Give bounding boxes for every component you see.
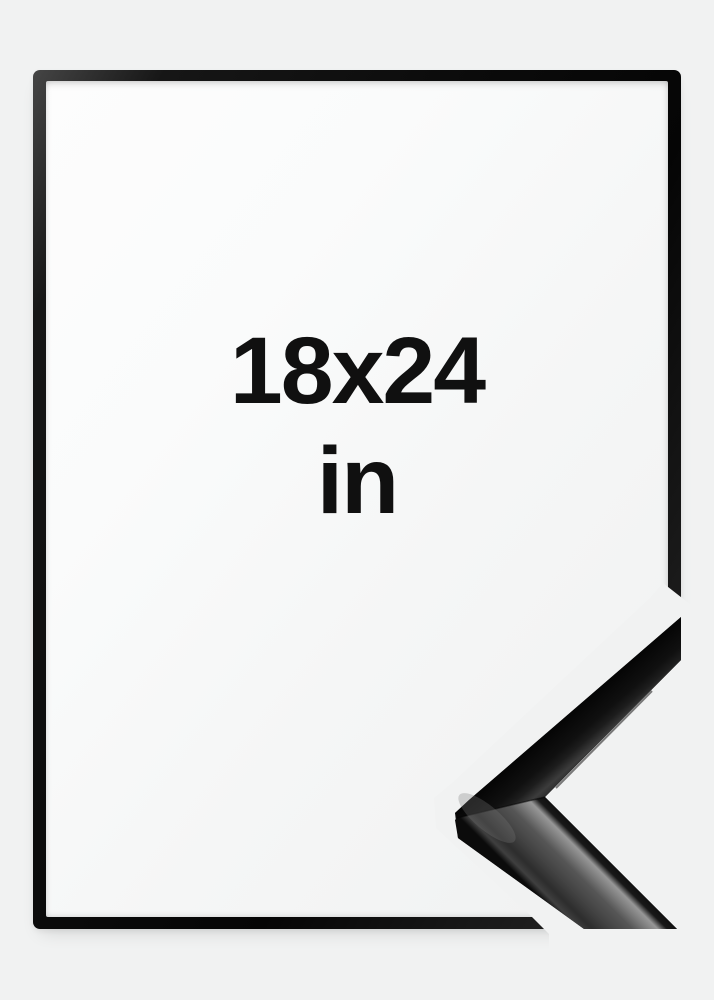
frame-opening: 18x24 in <box>46 81 668 917</box>
size-unit: in <box>46 427 668 537</box>
product-photo: 18x24 in <box>0 0 714 1000</box>
picture-frame: 18x24 in <box>33 70 681 929</box>
size-label: 18x24 in <box>46 317 668 536</box>
size-value: 18x24 <box>46 317 668 427</box>
